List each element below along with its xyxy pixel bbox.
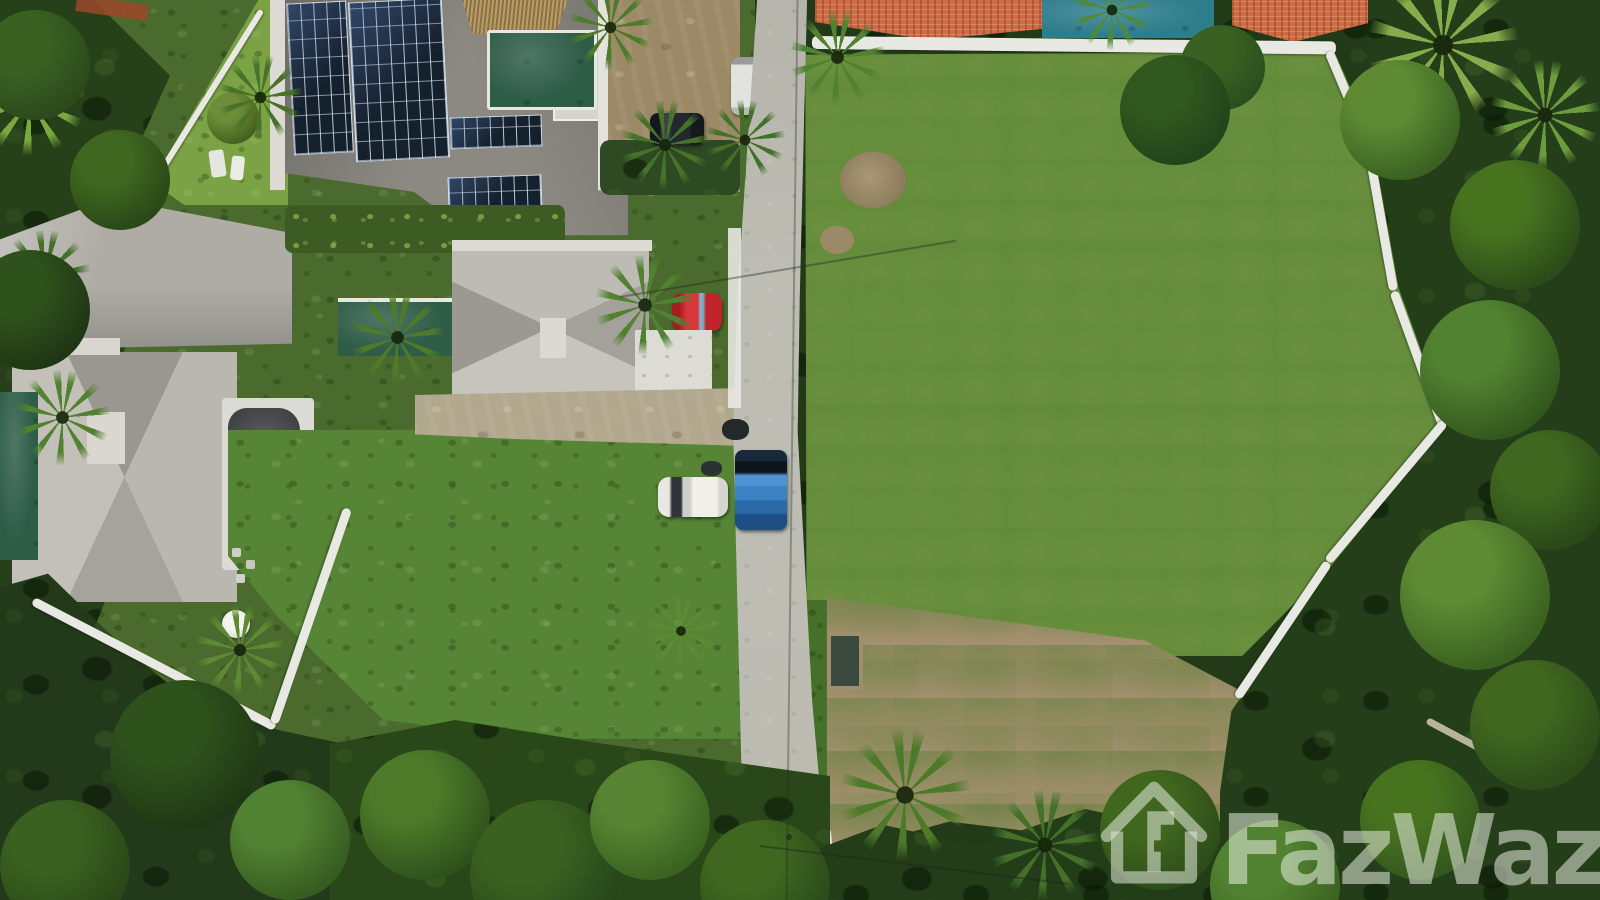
palm-tree xyxy=(990,790,1100,900)
palm-tree xyxy=(15,370,110,465)
palm-tree xyxy=(840,730,970,860)
palm-tree xyxy=(620,100,710,190)
palm-tree xyxy=(790,10,885,105)
terrace-edge xyxy=(452,240,652,251)
fazwaz-watermark: FazWaz xyxy=(1098,772,1600,892)
tree-canopy xyxy=(70,130,170,230)
tree-canopy xyxy=(230,780,350,900)
orange-tile-roof xyxy=(1232,0,1368,42)
dirt-patch xyxy=(820,226,854,254)
palm-tree xyxy=(1490,60,1600,170)
tree-canopy xyxy=(1400,520,1550,670)
thatched-pavilion-roof xyxy=(462,0,568,34)
aerial-scene: FazWaz xyxy=(0,0,1600,900)
roof-ridge xyxy=(540,318,566,358)
motorbike xyxy=(722,419,749,440)
tree-canopy xyxy=(1120,55,1230,165)
tree-canopy xyxy=(590,760,710,880)
fazwaz-house-logo-icon xyxy=(1098,772,1210,892)
roadside-wall xyxy=(728,228,741,408)
white-suv xyxy=(658,477,728,517)
palm-tree xyxy=(218,55,303,140)
tree-canopy xyxy=(1470,660,1600,790)
water-tank xyxy=(827,632,863,690)
solar-panel-array xyxy=(449,114,542,149)
palm-tree xyxy=(195,605,285,695)
tree-canopy xyxy=(110,680,260,830)
palm-tree xyxy=(595,255,695,355)
sun-lounger xyxy=(230,155,245,180)
palm-tree xyxy=(645,595,717,667)
blue-pickup-truck xyxy=(735,450,787,530)
palm-tree xyxy=(350,290,445,385)
tree-canopy xyxy=(1340,60,1460,180)
tree-canopy xyxy=(1450,160,1580,290)
solar-panel-array xyxy=(348,0,450,162)
palm-tree xyxy=(705,100,785,180)
dirt-patch xyxy=(840,152,906,208)
fazwaz-brand-text: FazWaz xyxy=(1220,810,1600,892)
utility-pole xyxy=(786,834,792,840)
tree-canopy xyxy=(1420,300,1560,440)
stepping-stones xyxy=(232,548,241,557)
